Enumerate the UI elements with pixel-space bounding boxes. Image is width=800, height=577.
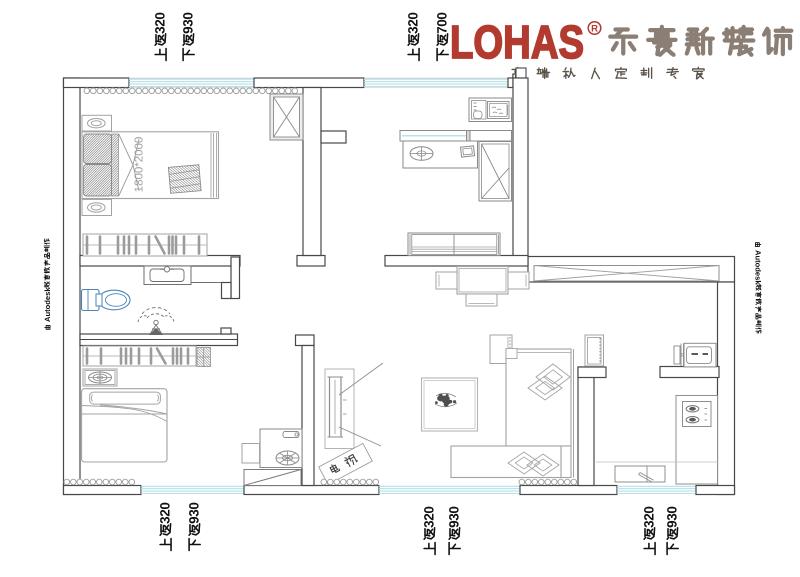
- svg-text:1800*2000: 1800*2000: [134, 137, 146, 193]
- svg-text:LOHAS: LOHAS: [450, 16, 584, 68]
- svg-text:930: 930: [181, 12, 196, 33]
- svg-text:320: 320: [422, 506, 437, 527]
- svg-text:930: 930: [187, 502, 202, 523]
- svg-text:Autodesk: Autodesk: [43, 287, 52, 322]
- svg-text:320: 320: [642, 506, 657, 527]
- svg-text:930: 930: [665, 506, 680, 527]
- svg-text:700: 700: [435, 12, 450, 33]
- svg-text:R: R: [591, 24, 598, 35]
- svg-text:320: 320: [406, 12, 421, 33]
- svg-text:930: 930: [447, 506, 462, 527]
- svg-text:320: 320: [153, 12, 168, 33]
- svg-text:Autodesk: Autodesk: [754, 250, 763, 285]
- svg-text:320: 320: [158, 502, 173, 523]
